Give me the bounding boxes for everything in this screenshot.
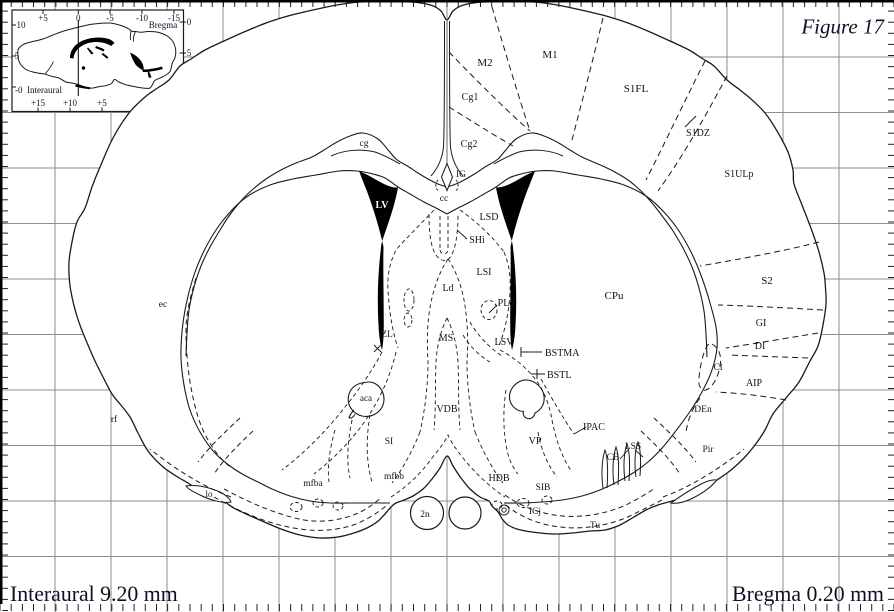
svg-text:MS: MS xyxy=(439,333,453,344)
svg-text:Tu: Tu xyxy=(590,521,600,531)
svg-text:aca: aca xyxy=(360,393,372,403)
svg-text:rf: rf xyxy=(111,414,118,425)
svg-text:LSV: LSV xyxy=(495,337,515,348)
svg-text:Cg1: Cg1 xyxy=(462,92,479,103)
svg-text:+5: +5 xyxy=(97,98,107,108)
svg-text:Ld: Ld xyxy=(442,283,453,294)
svg-text:IG: IG xyxy=(456,170,466,180)
svg-text:+15: +15 xyxy=(31,98,46,108)
svg-text:BSTMA: BSTMA xyxy=(545,348,580,359)
svg-text:GI: GI xyxy=(756,318,767,329)
svg-text:0: 0 xyxy=(187,17,192,27)
svg-text:Interaural 9.20 mm: Interaural 9.20 mm xyxy=(10,582,178,606)
svg-text:+10: +10 xyxy=(63,98,78,108)
svg-text:LSS: LSS xyxy=(625,442,641,452)
svg-text:CB: CB xyxy=(607,453,620,463)
svg-text:PLd: PLd xyxy=(498,298,515,309)
svg-text:BSTL: BSTL xyxy=(547,370,571,381)
svg-text:VP: VP xyxy=(529,436,542,447)
svg-text:2n: 2n xyxy=(420,510,430,520)
svg-text:M2: M2 xyxy=(477,57,492,69)
svg-text:-5: -5 xyxy=(106,13,114,23)
svg-text:Cg2: Cg2 xyxy=(461,139,478,150)
svg-text:5: 5 xyxy=(187,48,192,58)
svg-text:Interaural: Interaural xyxy=(27,85,62,95)
svg-text:ZL: ZL xyxy=(381,330,393,340)
svg-text:VDB: VDB xyxy=(436,404,457,415)
svg-text:HDB: HDB xyxy=(488,473,509,484)
svg-text:SHi: SHi xyxy=(469,235,485,246)
svg-text:SI: SI xyxy=(385,437,393,447)
svg-text:ICj: ICj xyxy=(529,507,541,517)
svg-text:10: 10 xyxy=(17,20,27,30)
svg-text:S1DZ: S1DZ xyxy=(686,128,710,139)
svg-text:lo: lo xyxy=(205,489,213,499)
svg-text:-0: -0 xyxy=(15,85,23,95)
svg-text:5: 5 xyxy=(15,51,20,61)
svg-text:M1: M1 xyxy=(542,49,557,61)
svg-text:cc: cc xyxy=(440,194,448,204)
svg-text:mfba: mfba xyxy=(303,478,323,489)
svg-text:S1ULp: S1ULp xyxy=(725,169,754,180)
svg-text:+5: +5 xyxy=(38,13,48,23)
svg-text:Bregma 0.20 mm: Bregma 0.20 mm xyxy=(732,582,884,606)
svg-text:cg: cg xyxy=(360,139,369,149)
svg-text:SIB: SIB xyxy=(536,483,551,493)
svg-text:DI: DI xyxy=(755,341,766,352)
svg-text:S1FL: S1FL xyxy=(624,83,649,95)
svg-text:CPu: CPu xyxy=(605,290,624,302)
svg-text:Figure 17: Figure 17 xyxy=(800,15,885,39)
svg-text:LV: LV xyxy=(376,200,390,211)
svg-text:DEn: DEn xyxy=(694,405,712,415)
svg-text:LSI: LSI xyxy=(477,267,492,278)
svg-text:Cl: Cl xyxy=(714,363,723,373)
svg-text:AIP: AIP xyxy=(746,378,763,389)
svg-text:IPAC: IPAC xyxy=(583,422,605,433)
svg-text:0: 0 xyxy=(76,13,81,23)
svg-text:ec: ec xyxy=(159,300,167,310)
svg-text:Pir: Pir xyxy=(702,445,714,455)
svg-text:mfbb: mfbb xyxy=(384,471,404,482)
svg-text:LSD: LSD xyxy=(480,212,499,223)
svg-text:S2: S2 xyxy=(761,275,773,287)
svg-text:-10: -10 xyxy=(136,13,148,23)
svg-text:Bregma: Bregma xyxy=(149,20,178,30)
